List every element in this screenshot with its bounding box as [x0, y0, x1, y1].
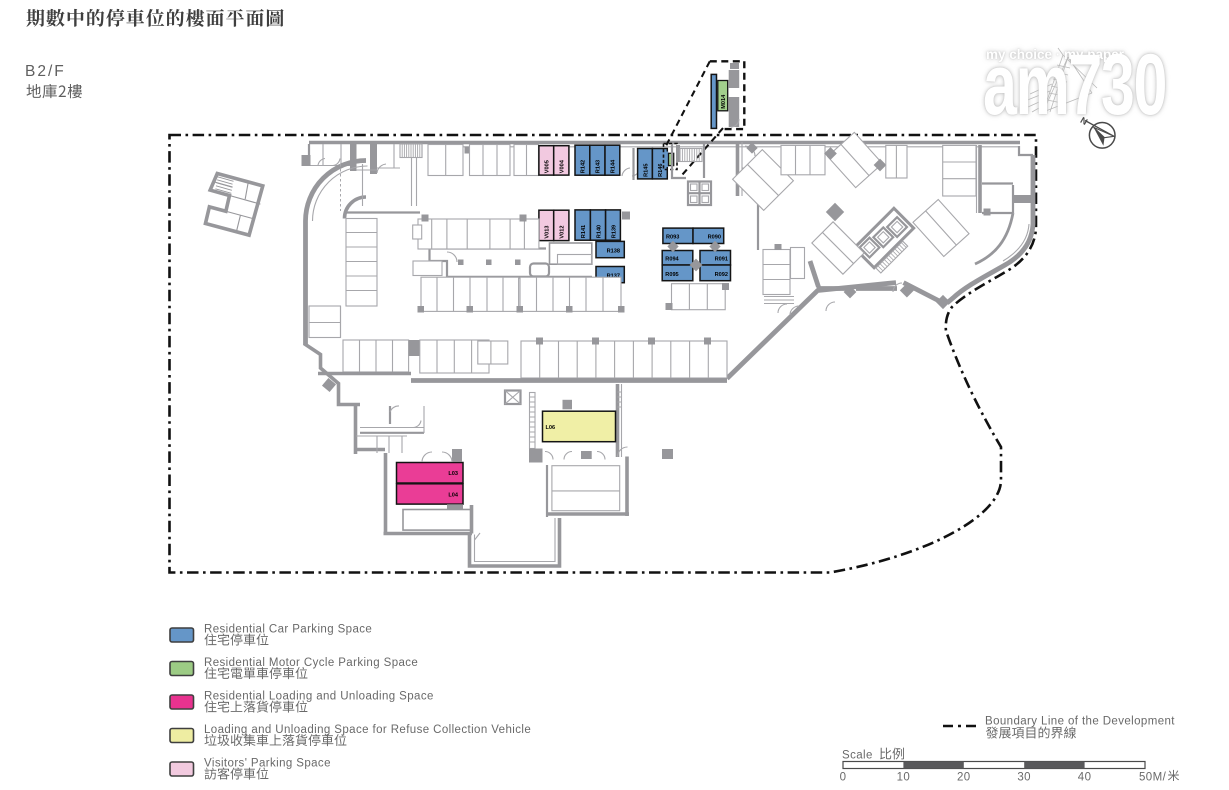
svg-text:0: 0 — [840, 772, 847, 784]
svg-text:R090: R090 — [708, 234, 721, 240]
svg-text:10: 10 — [897, 772, 911, 784]
svg-text:R139: R139 — [611, 225, 617, 238]
svg-text:V005: V005 — [545, 160, 551, 173]
svg-text:V004: V004 — [560, 159, 566, 173]
svg-text:20: 20 — [957, 772, 971, 784]
svg-text:R143: R143 — [596, 160, 602, 173]
svg-text:R141: R141 — [581, 225, 587, 238]
svg-text:Scale: Scale — [842, 750, 873, 762]
svg-text:Residential Loading and Unload: Residential Loading and Unloading Space — [204, 691, 434, 703]
svg-text:Residential Motor Cycle Parkin: Residential Motor Cycle Parking Space — [204, 657, 418, 669]
svg-text:R144: R144 — [611, 159, 617, 173]
svg-text:R095: R095 — [665, 272, 678, 278]
svg-text:M014: M014 — [721, 94, 727, 109]
svg-text:R140: R140 — [596, 225, 602, 238]
svg-text:V012: V012 — [560, 226, 566, 239]
svg-text:40: 40 — [1078, 772, 1092, 784]
svg-text:30: 30 — [1017, 772, 1031, 784]
svg-text:R091: R091 — [715, 257, 728, 263]
svg-text:V013: V013 — [545, 226, 551, 239]
svg-text:50M/: 50M/ — [1139, 772, 1167, 784]
svg-text:R092: R092 — [715, 272, 728, 278]
svg-text:L06: L06 — [546, 425, 556, 431]
svg-text:R138: R138 — [607, 248, 620, 254]
svg-text:L04: L04 — [448, 493, 459, 499]
svg-text:R145: R145 — [643, 164, 649, 177]
svg-text:am730: am730 — [983, 36, 1166, 133]
svg-text:R094: R094 — [665, 257, 679, 263]
svg-text:Boundary Line of the Developme: Boundary Line of the Development — [985, 716, 1175, 728]
svg-text:B2/F: B2/F — [25, 63, 66, 80]
svg-text:Loading and Unloading Space fo: Loading and Unloading Space for Refuse C… — [204, 724, 531, 736]
svg-text:R093: R093 — [666, 234, 679, 240]
svg-text:R142: R142 — [581, 160, 587, 173]
svg-text:Residential Car Parking Space: Residential Car Parking Space — [204, 624, 372, 636]
svg-text:L03: L03 — [448, 471, 458, 477]
